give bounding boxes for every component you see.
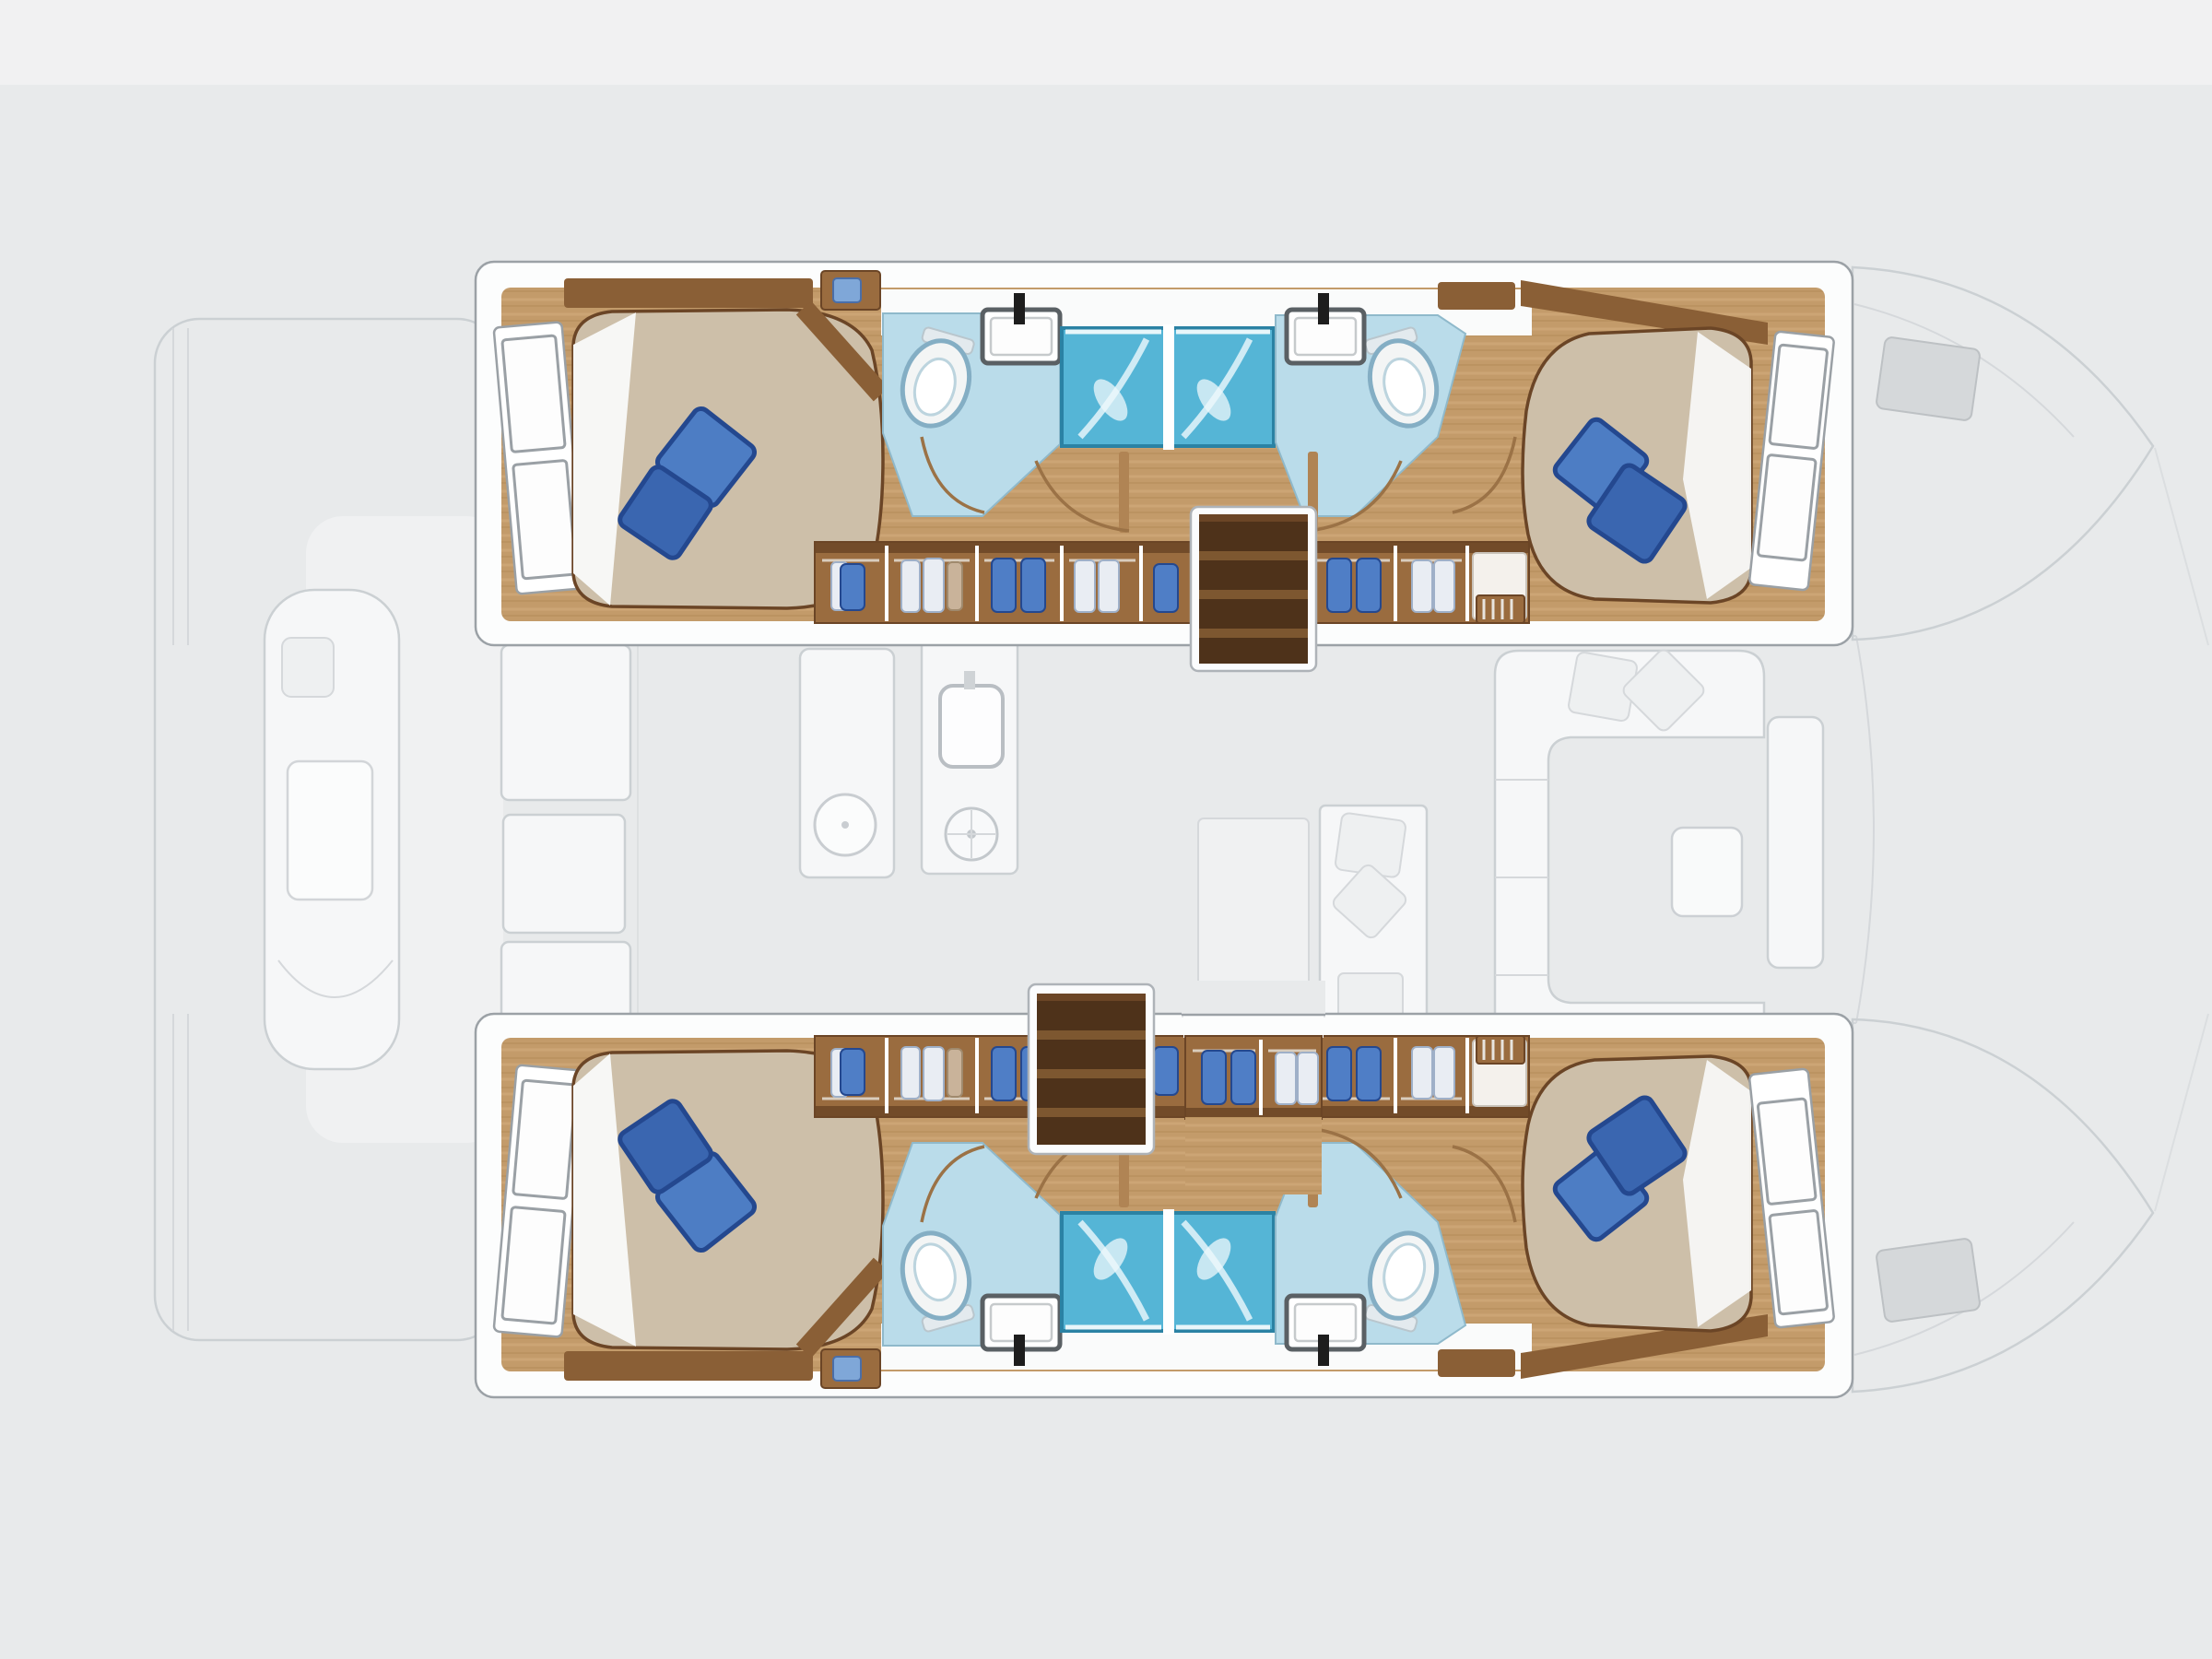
- companionway-stairs: [1191, 507, 1316, 671]
- hanging-clothes: [1434, 560, 1454, 612]
- salon-table: [1672, 828, 1742, 916]
- window-pane: [1770, 345, 1828, 449]
- window-pane: [502, 335, 565, 453]
- hanging-clothes: [1202, 1051, 1226, 1104]
- aft-deck-module: [501, 645, 630, 800]
- hanging-clothes: [1298, 1053, 1318, 1104]
- hanging-towel: [841, 564, 865, 610]
- hanging-clothes: [901, 560, 920, 612]
- salon-floor-patch: [1182, 981, 1325, 1018]
- vented-locker: [1477, 595, 1524, 623]
- hanging-clothes: [1276, 1053, 1296, 1104]
- upper-hull: [476, 262, 1853, 671]
- window-pane: [513, 460, 577, 579]
- hull-band-patch: [1183, 1014, 1324, 1038]
- aft-deck-module: [503, 815, 625, 933]
- forward-console: [1768, 717, 1823, 968]
- faucet: [1318, 293, 1329, 324]
- deck-hatch: [1876, 336, 1981, 421]
- companionway-stairs: [1029, 984, 1154, 1154]
- faucet: [1014, 293, 1025, 324]
- wardrobe-row: [815, 542, 1529, 623]
- door-leaf: [1119, 452, 1129, 533]
- shower-partition: [1163, 324, 1174, 450]
- hanging-clothes: [924, 559, 944, 612]
- hanging-clothes: [1327, 559, 1351, 612]
- deck-hatch: [1876, 1238, 1981, 1323]
- galley-faucet: [964, 671, 975, 689]
- galley-sink: [940, 686, 1003, 767]
- stowed-item: [833, 278, 861, 302]
- wardrobe-patch: [1185, 1036, 1322, 1119]
- hanging-clothes: [947, 562, 962, 610]
- hanging-clothes: [1412, 560, 1432, 612]
- galley-island: [800, 649, 894, 877]
- hanging-clothes: [1357, 559, 1381, 612]
- nav-desk: [1338, 973, 1403, 1019]
- shower-block: [1062, 324, 1274, 450]
- corridor-floor-patch: [1185, 1117, 1322, 1194]
- forward-cabin: [1523, 328, 1834, 603]
- hanging-clothes: [1099, 560, 1119, 612]
- wall-cabinet-with-item: [821, 271, 880, 310]
- background-top-strip: [0, 0, 2212, 85]
- window-pane: [1758, 454, 1816, 560]
- top-wall-shelf: [564, 278, 813, 308]
- hanging-towel: [1154, 564, 1178, 612]
- top-wall-shelf: [1438, 282, 1515, 310]
- hanging-clothes: [1231, 1051, 1255, 1104]
- hanging-clothes: [1021, 559, 1045, 612]
- catamaran-floor-plan: [0, 0, 2212, 1659]
- hanging-clothes: [1075, 560, 1095, 612]
- galley-counter: [922, 623, 1018, 874]
- hanging-clothes: [992, 559, 1016, 612]
- floor-plan-image: [0, 0, 2212, 1659]
- cockpit-bench-table: [265, 590, 399, 1069]
- cockpit-table: [288, 761, 372, 900]
- lower-hull: [476, 988, 1853, 1397]
